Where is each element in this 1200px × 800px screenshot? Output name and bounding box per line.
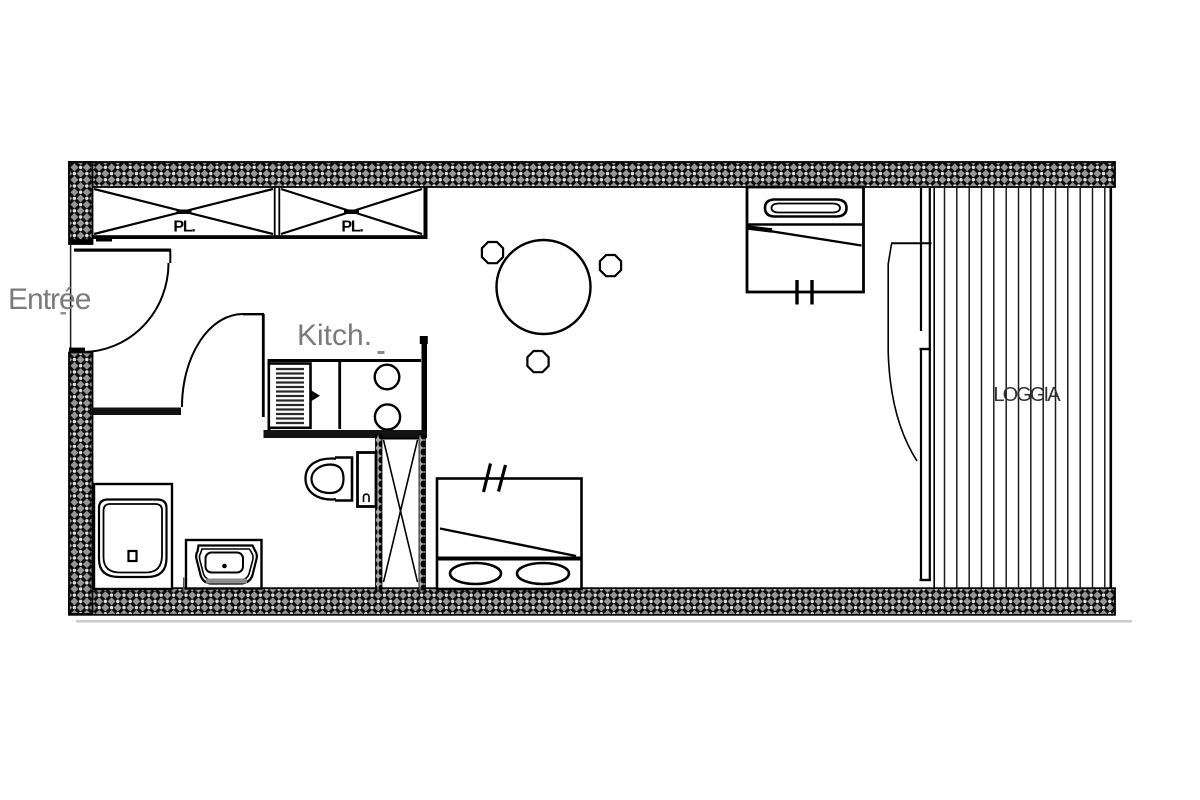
svg-text:LOGGIA: LOGGIA bbox=[993, 384, 1061, 406]
svg-text:PL.: PL. bbox=[341, 219, 363, 236]
svg-text:Entrée: Entrée bbox=[8, 283, 91, 316]
svg-text:PL.: PL. bbox=[173, 219, 195, 236]
svg-text:Kitch.: Kitch. bbox=[297, 319, 372, 352]
